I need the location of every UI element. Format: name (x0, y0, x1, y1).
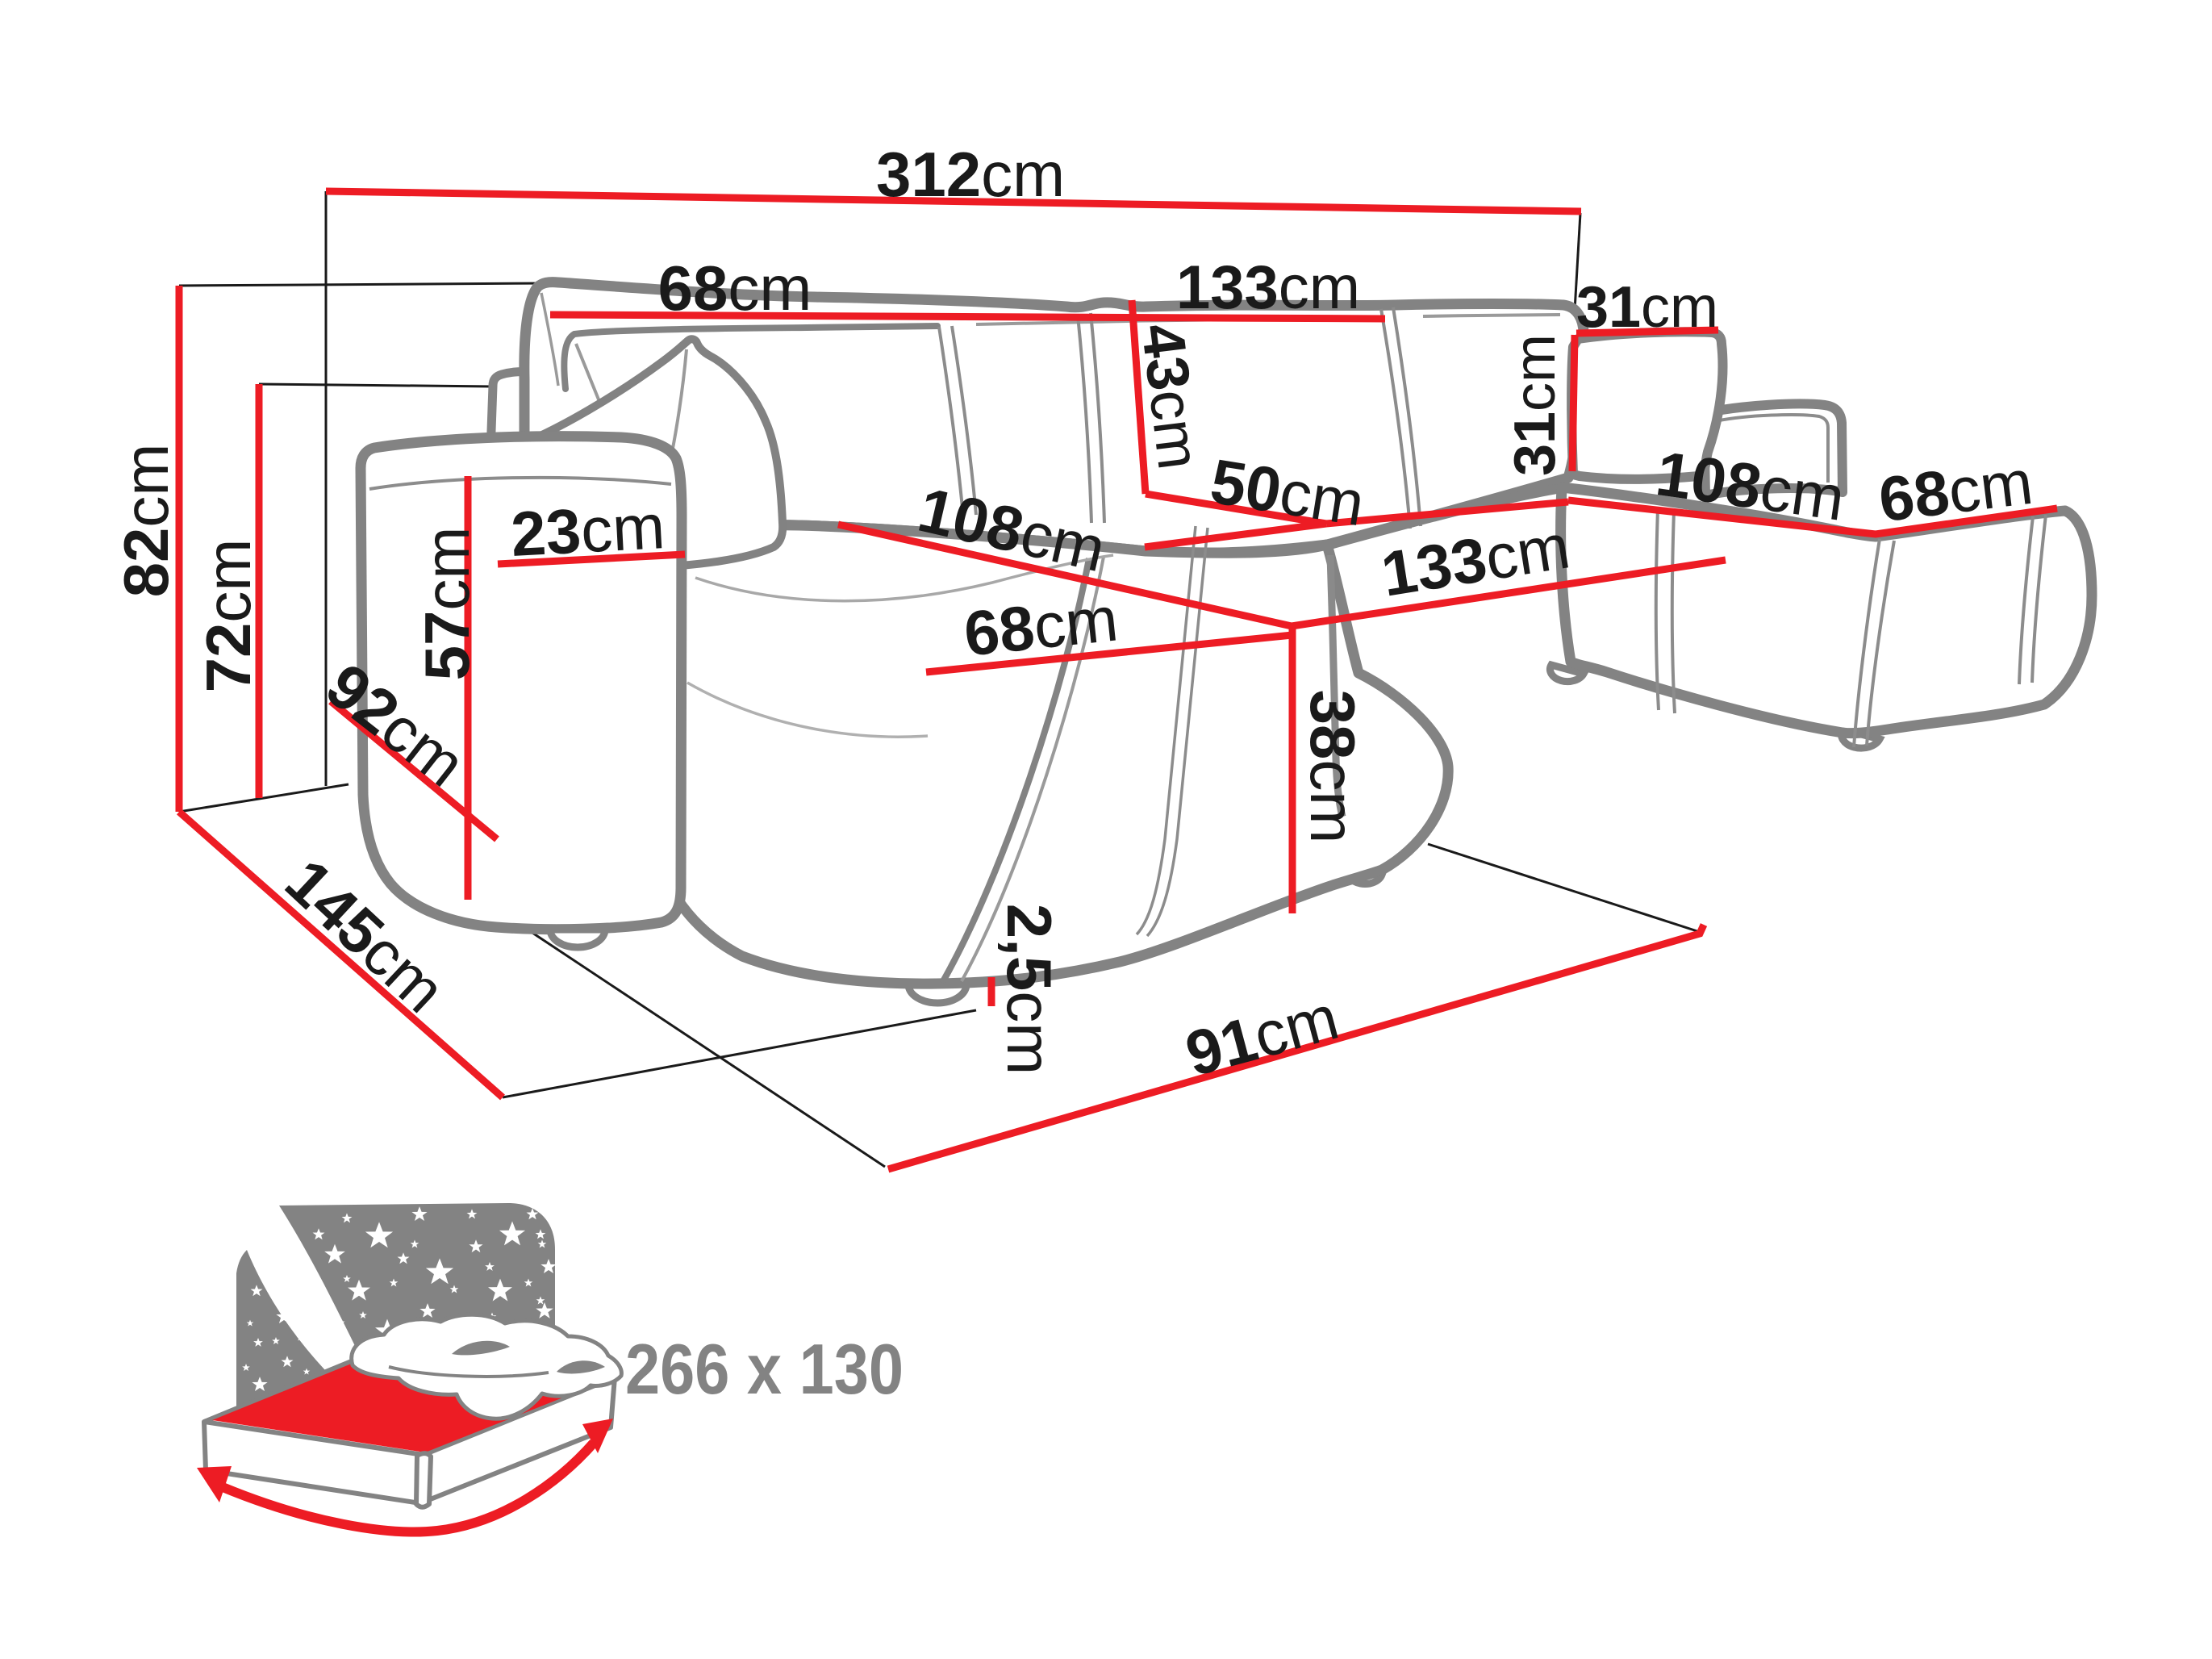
svg-text:312cm: 312cm (876, 139, 1065, 210)
svg-text:266 x 130: 266 x 130 (625, 1329, 904, 1409)
svg-text:23cm: 23cm (509, 491, 666, 570)
svg-text:31cm: 31cm (1576, 275, 1718, 340)
svg-text:82cm: 82cm (111, 444, 182, 598)
svg-text:31cm: 31cm (1503, 334, 1567, 476)
svg-text:2,5cm: 2,5cm (994, 904, 1065, 1075)
svg-text:72cm: 72cm (193, 539, 264, 693)
svg-text:57cm: 57cm (411, 527, 482, 681)
svg-text:68cm: 68cm (658, 253, 812, 324)
svg-text:38cm: 38cm (1297, 690, 1368, 844)
svg-text:133cm: 133cm (1176, 253, 1360, 322)
